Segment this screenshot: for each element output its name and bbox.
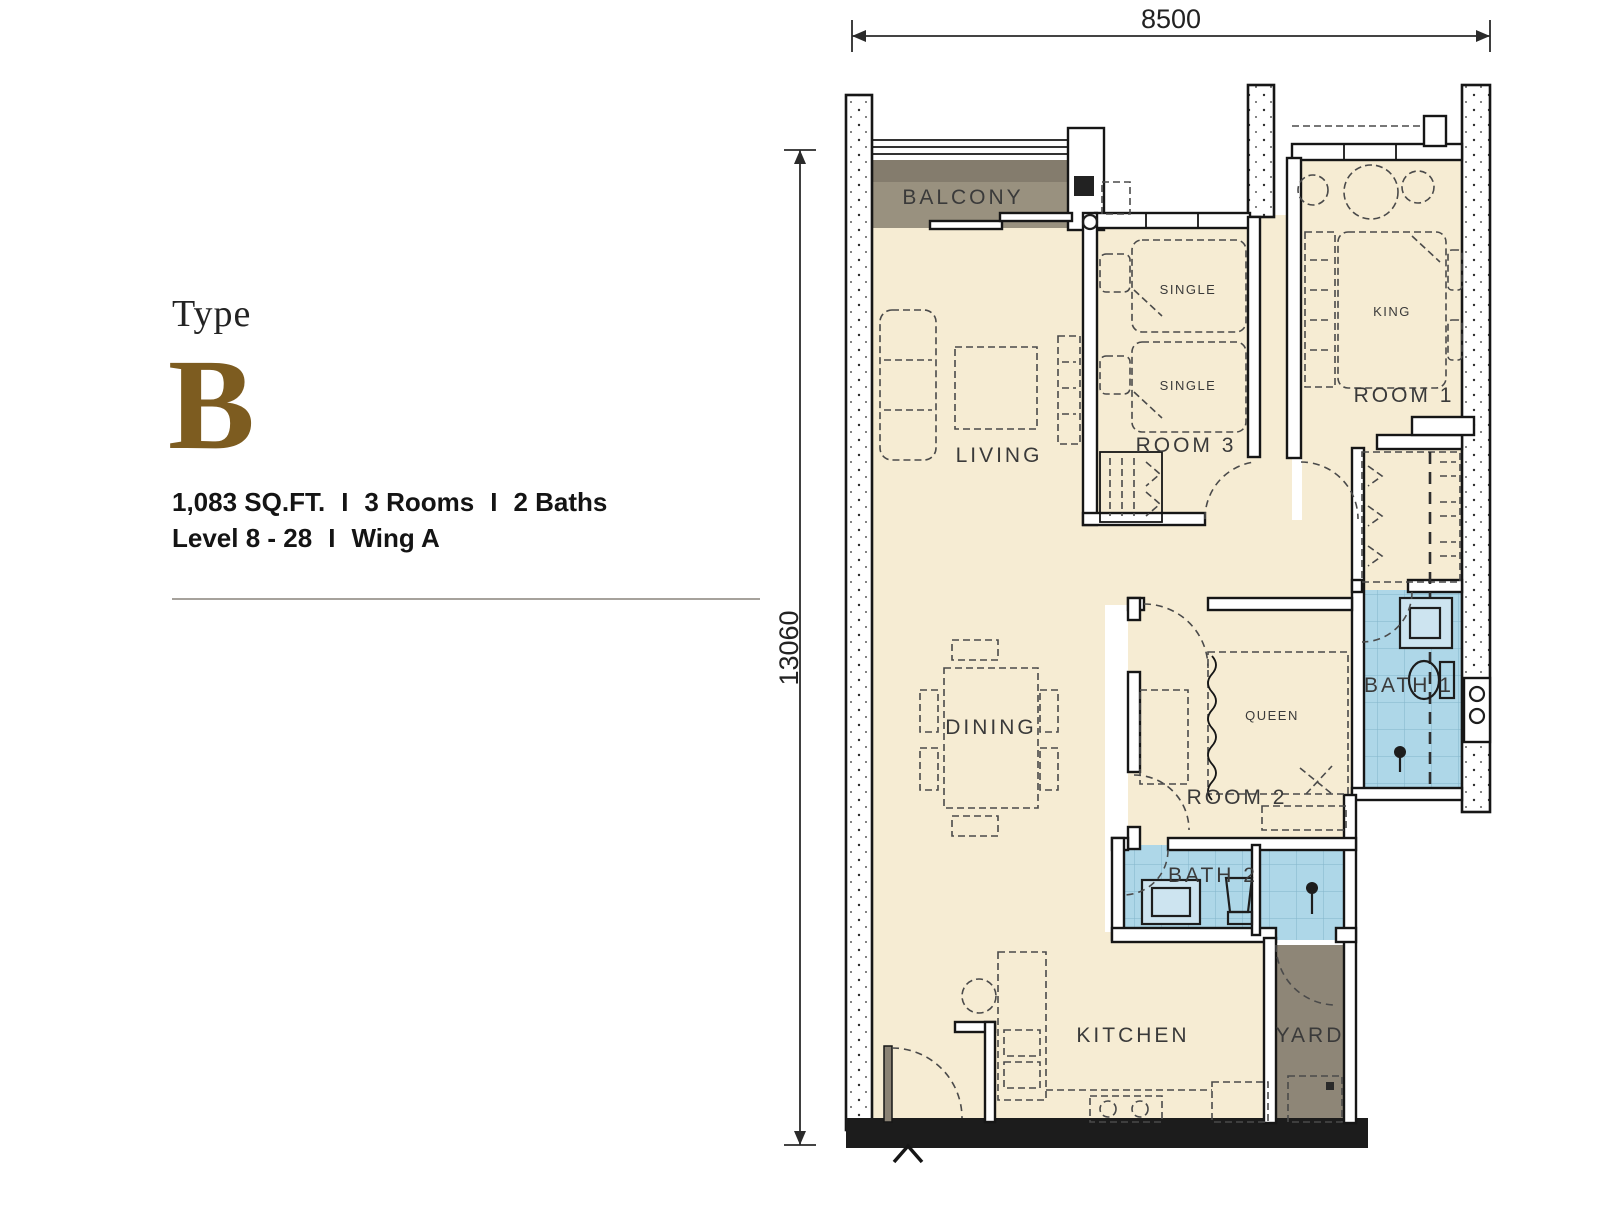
room2-left-wall bbox=[1128, 672, 1140, 772]
bath1-top-wall bbox=[1352, 580, 1362, 592]
room2-label: ROOM 2 bbox=[1187, 786, 1288, 809]
dim-arrow-icon bbox=[1476, 30, 1490, 42]
room1-label: ROOM 1 bbox=[1354, 384, 1455, 407]
yard-label: YARD bbox=[1276, 1024, 1345, 1047]
bottom-exterior-wall bbox=[846, 1118, 1368, 1148]
queen-bed-label: QUEEN bbox=[1245, 708, 1299, 723]
balcony-label: BALCONY bbox=[902, 186, 1023, 209]
shower-partition bbox=[1252, 845, 1260, 935]
room3-right-wall bbox=[1248, 217, 1260, 457]
floor-plan-page: Type B 1,083 SQ.FT.I3 RoomsI2 Baths Leve… bbox=[0, 0, 1600, 1222]
top-middle-wall bbox=[1248, 85, 1274, 217]
room1-bottom-wall bbox=[1377, 435, 1462, 449]
room3-window-wall bbox=[1095, 213, 1250, 228]
single-bed-label: SINGLE bbox=[1160, 282, 1217, 297]
bath2-top-wall bbox=[1168, 838, 1356, 850]
kitchen-stub-wall bbox=[985, 1022, 995, 1122]
dining-label: DINING bbox=[945, 716, 1037, 739]
bath1-bottom-wall bbox=[1352, 788, 1462, 800]
dim-height-value: 13060 bbox=[774, 610, 804, 685]
room3-left-wall bbox=[1083, 213, 1097, 525]
room3-bottom-wall bbox=[1083, 513, 1205, 525]
living-dining-floor bbox=[872, 228, 1105, 1125]
room2-top-wall bbox=[1208, 598, 1352, 610]
balcony-sliding-door bbox=[930, 221, 1002, 229]
room1-wall-notch bbox=[1424, 116, 1446, 146]
bath1-label: BATH 1 bbox=[1364, 674, 1454, 697]
entry-door-leaf bbox=[884, 1046, 892, 1122]
balcony-column bbox=[1074, 176, 1094, 196]
room2-left-wall bbox=[1128, 827, 1140, 849]
balcony-sliding-door bbox=[1000, 213, 1072, 221]
dim-arrow-icon bbox=[852, 30, 866, 42]
ac-ledge-dash bbox=[1102, 182, 1130, 214]
bath2-left-wall bbox=[1112, 838, 1124, 940]
dim-arrow-icon bbox=[794, 1131, 806, 1145]
room2-floor bbox=[1128, 605, 1352, 845]
suite-hall-floor bbox=[1302, 448, 1462, 590]
yard-top-wall bbox=[1336, 928, 1356, 942]
room3-label: ROOM 3 bbox=[1136, 434, 1237, 457]
washer-knob bbox=[1326, 1082, 1334, 1090]
dim-arrow-icon bbox=[794, 150, 806, 164]
left-exterior-wall bbox=[846, 95, 872, 1130]
dimension-top: 8500 bbox=[852, 4, 1490, 52]
bath1-vanity bbox=[1400, 598, 1452, 648]
king-bed-label: KING bbox=[1373, 304, 1411, 319]
single-bed-label: SINGLE bbox=[1160, 378, 1217, 393]
kitchen-label: KITCHEN bbox=[1076, 1024, 1189, 1047]
living-label: LIVING bbox=[956, 444, 1043, 467]
dim-width-value: 8500 bbox=[1141, 4, 1201, 34]
floor-plan-svg: BALCONY LIVING DINING KITCHEN YARD ROOM … bbox=[0, 0, 1600, 1222]
room1-ledge bbox=[1412, 417, 1474, 435]
dimension-left: 13060 bbox=[774, 150, 816, 1145]
bath2-label: BATH 2 bbox=[1168, 864, 1258, 887]
entry-arrow-icon bbox=[894, 1146, 922, 1162]
room1-left-wall bbox=[1287, 158, 1301, 458]
room2-left-wall bbox=[1128, 598, 1140, 620]
yard-left-wall bbox=[1264, 938, 1276, 1123]
